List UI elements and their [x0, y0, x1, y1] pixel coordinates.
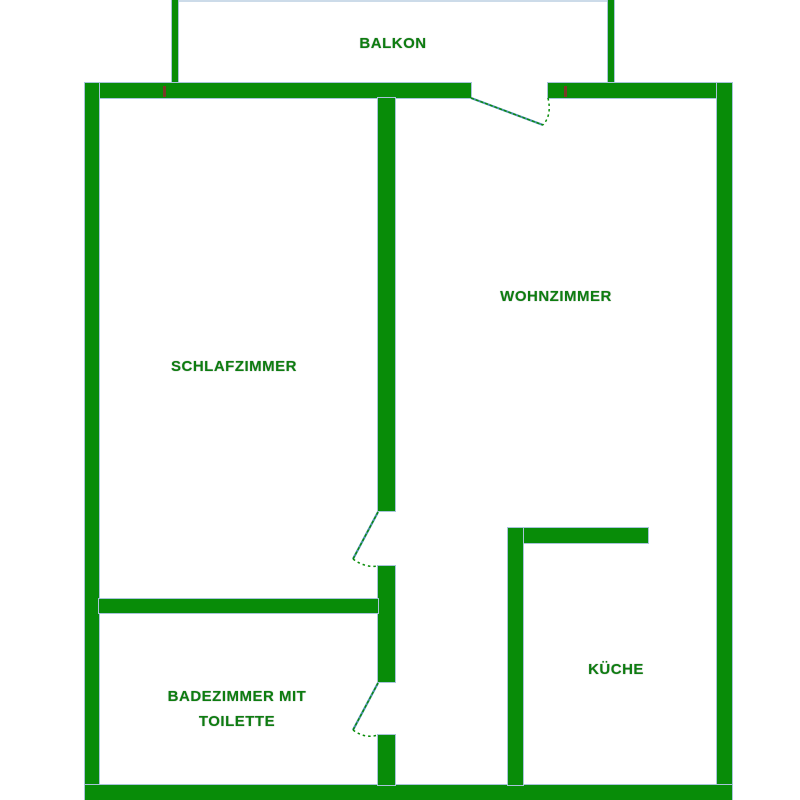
room-label-kueche: KÜCHE — [566, 657, 666, 682]
bathroom-top-wall — [99, 599, 378, 613]
divider-wall-upper — [378, 98, 395, 511]
bathroom-door-leaf — [353, 683, 378, 730]
balcony-door-swing-arc — [543, 98, 549, 125]
bedroom-door-leaf — [353, 512, 378, 559]
balcony-left-wall — [172, 0, 178, 85]
wall-mark-right — [564, 86, 567, 97]
balcony-door-leaf — [471, 98, 543, 125]
outer-top-wall-right — [548, 83, 732, 98]
wall-mark-left — [163, 86, 166, 97]
bathroom-door-leaf-dash — [353, 683, 378, 730]
room-label-badezimmer: BADEZIMMER MIT TOILETTE — [147, 684, 327, 734]
divider-wall-lower — [378, 735, 395, 785]
outer-left-wall — [85, 83, 99, 800]
room-label-schlafzimmer: SCHLAFZIMMER — [144, 354, 324, 379]
kitchen-left-wall — [508, 528, 523, 785]
outer-top-wall-left — [85, 83, 471, 98]
floor-plan: BALKON WOHNZIMMER SCHLAFZIMMER KÜCHE BAD… — [0, 0, 800, 800]
outer-bottom-wall — [85, 785, 732, 800]
outer-right-wall — [717, 83, 732, 800]
balcony-door-leaf-dash — [471, 98, 543, 125]
balcony-right-wall — [608, 0, 614, 85]
door-layer — [0, 0, 800, 800]
room-label-wohnzimmer: WOHNZIMMER — [476, 284, 636, 309]
bedroom-door-leaf-dash — [353, 512, 378, 559]
bathroom-door-swing-arc — [353, 730, 378, 736]
kitchen-top-wall — [508, 528, 648, 543]
divider-wall-middle — [378, 566, 395, 682]
room-label-balkon: BALKON — [343, 31, 443, 56]
bedroom-door-swing-arc — [353, 559, 378, 566]
balcony-railing — [172, 0, 614, 2]
